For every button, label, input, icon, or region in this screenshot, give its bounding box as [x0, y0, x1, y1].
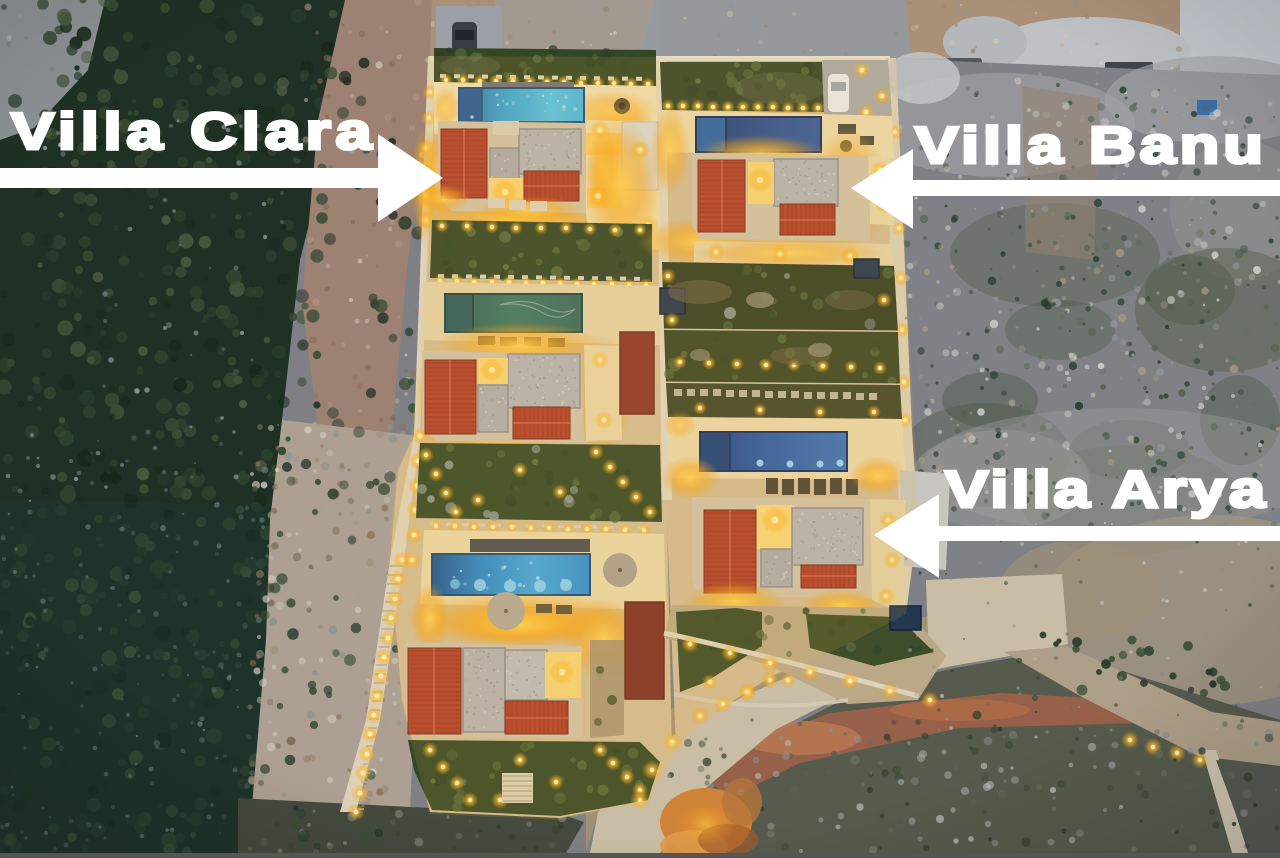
svg-text:Villa Arya: Villa Arya [945, 461, 1268, 518]
svg-text:Villa Clara: Villa Clara [11, 103, 376, 160]
svg-text:Villa Banu: Villa Banu [915, 117, 1267, 174]
